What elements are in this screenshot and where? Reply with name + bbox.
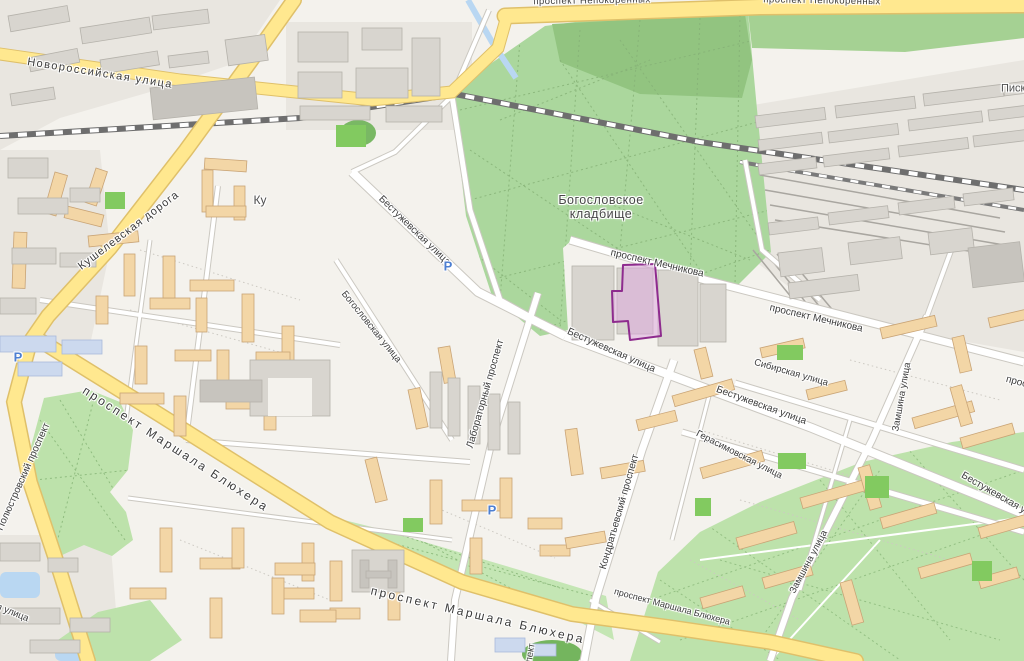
map-viewport[interactable]: Новороссийская улицаКушелевская дорогапр… <box>0 0 1024 661</box>
map-graphics <box>0 0 1024 661</box>
